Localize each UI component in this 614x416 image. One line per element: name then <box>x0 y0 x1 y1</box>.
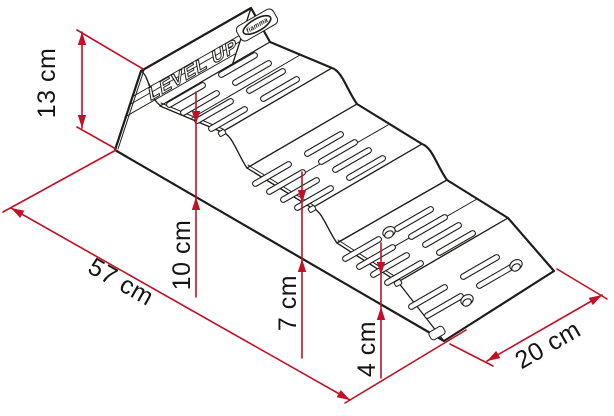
label-length: 57 cm <box>83 252 158 311</box>
label-step-low: 4 cm <box>353 321 381 377</box>
label-step-mid: 7 cm <box>274 275 302 331</box>
label-step-high: 10 cm <box>168 220 196 291</box>
label-total-height: 13 cm <box>33 48 61 119</box>
diagram-canvas: LEVEL UP fiamma <box>0 0 614 416</box>
label-width: 20 cm <box>510 315 585 375</box>
level-up-ramp-diagram: LEVEL UP fiamma <box>0 0 614 416</box>
